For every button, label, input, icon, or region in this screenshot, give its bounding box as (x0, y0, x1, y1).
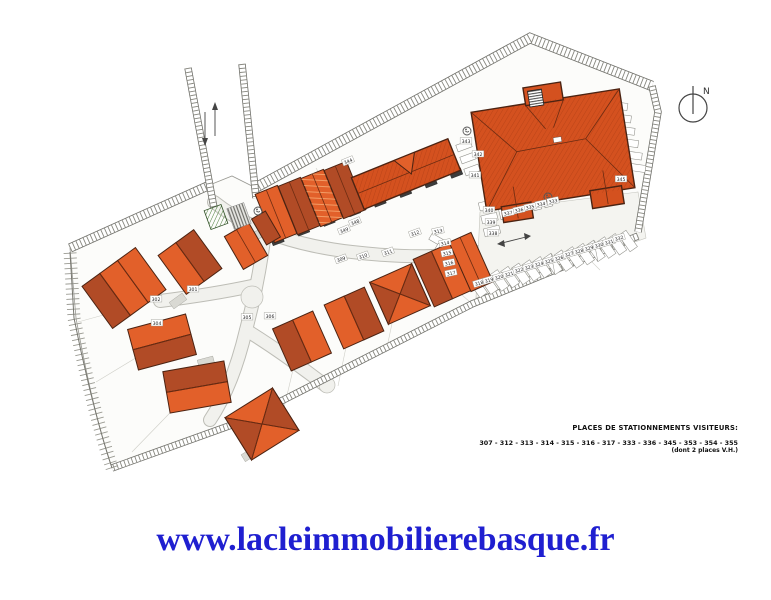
parking-notes: PLACES DE STATIONNEMENTS VISITEURS: 307 … (479, 424, 738, 454)
svg-text:343: 343 (462, 139, 471, 145)
plot-label: 306 (264, 313, 276, 320)
plot-label: 342 (472, 151, 484, 158)
svg-text:305: 305 (243, 315, 252, 321)
svg-text:302: 302 (152, 297, 161, 303)
watermark-url[interactable]: www.lacleimmobilierebasque.fr (0, 521, 771, 559)
plot-label: 338 (487, 230, 499, 237)
svg-text:342: 342 (474, 152, 483, 158)
plot-label: 341 (469, 172, 481, 179)
notes-suffix: (dont 2 places V.H.) (479, 447, 738, 454)
lane-direction-arrows (202, 102, 218, 146)
plot-label: 343 (460, 138, 472, 145)
north-arrow: N (679, 86, 710, 122)
stairwell-hatch (527, 89, 543, 107)
svg-text:345: 345 (617, 177, 626, 183)
north-label: N (703, 87, 710, 97)
plot-label: 304 (151, 320, 163, 327)
plot-label: 302 (150, 296, 162, 303)
plot-label: 339 (485, 219, 497, 226)
notes-numbers: 307 - 312 - 313 - 314 - 315 - 316 - 317 … (479, 439, 738, 447)
plot-label: 340 (483, 207, 495, 214)
svg-text:341: 341 (471, 173, 480, 179)
plot-label: 305 (241, 314, 253, 321)
svg-text:301: 301 (189, 287, 198, 293)
svg-text:306: 306 (266, 314, 275, 320)
rooflight (553, 137, 562, 143)
notes-title: PLACES DE STATIONNEMENTS VISITEURS: (479, 424, 738, 432)
plot-label: 345 (615, 176, 627, 183)
svg-text:339: 339 (487, 220, 496, 226)
plot-label: 301 (187, 286, 199, 293)
site-plan-page: 3013023043053063093103113123133143153163… (0, 0, 771, 600)
svg-text:340: 340 (485, 208, 494, 214)
svg-text:338: 338 (489, 231, 498, 237)
svg-text:304: 304 (153, 321, 162, 327)
